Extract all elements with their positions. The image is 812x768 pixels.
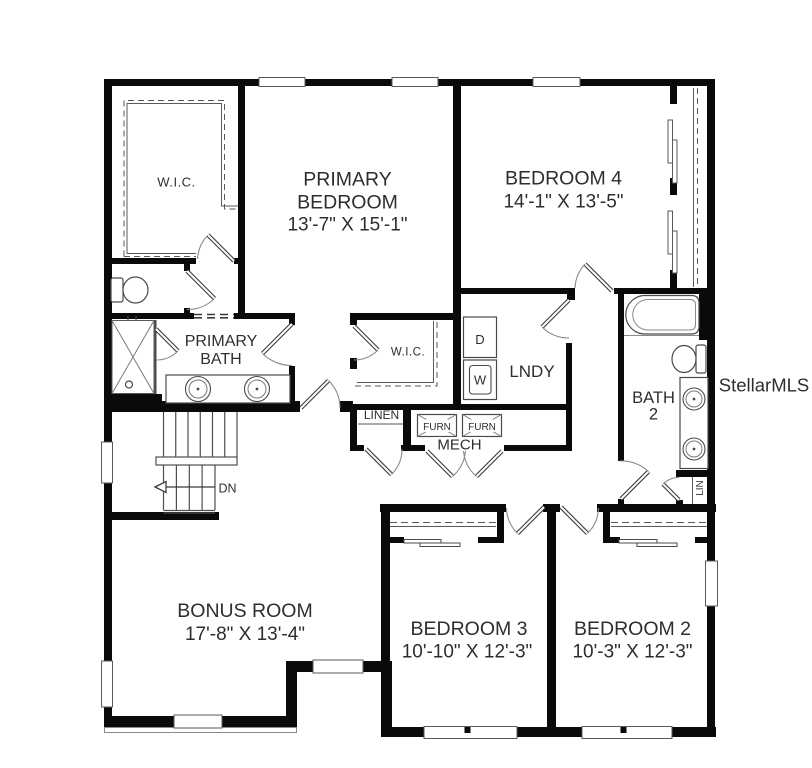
svg-text:LIN: LIN [695, 480, 706, 496]
svg-text:BEDROOM: BEDROOM [297, 192, 398, 214]
svg-text:BATH: BATH [200, 351, 241, 368]
svg-text:14'-1" X 13'-5": 14'-1" X 13'-5" [503, 192, 623, 213]
svg-text:W.I.C.: W.I.C. [391, 347, 425, 359]
svg-text:W.I.C.: W.I.C. [157, 175, 195, 190]
svg-text:D: D [475, 332, 484, 347]
svg-text:2: 2 [649, 406, 658, 424]
svg-text:BATH: BATH [632, 389, 675, 407]
svg-text:W: W [474, 373, 487, 388]
svg-text:PRIMARY: PRIMARY [303, 169, 392, 191]
svg-text:LNDY: LNDY [509, 362, 554, 381]
svg-text:PRIMARY: PRIMARY [185, 333, 258, 350]
svg-text:10'-10" X 12'-3": 10'-10" X 12'-3" [402, 642, 533, 663]
svg-text:FURN: FURN [468, 422, 496, 433]
svg-text:10'-3" X 12'-3": 10'-3" X 12'-3" [572, 642, 692, 663]
svg-text:StellarMLS: StellarMLS [719, 375, 809, 396]
svg-text:17'-8" X 13'-4": 17'-8" X 13'-4" [185, 624, 305, 645]
svg-text:DN: DN [218, 482, 236, 496]
svg-text:BEDROOM 3: BEDROOM 3 [410, 618, 527, 640]
svg-text:13'-7" X 15'-1": 13'-7" X 15'-1" [287, 215, 407, 236]
svg-text:BEDROOM 4: BEDROOM 4 [505, 168, 622, 190]
svg-text:BONUS ROOM: BONUS ROOM [177, 600, 312, 622]
svg-text:BEDROOM 2: BEDROOM 2 [574, 618, 691, 640]
svg-text:LINEN: LINEN [364, 408, 399, 422]
svg-text:MECH: MECH [437, 437, 481, 454]
svg-text:FURN: FURN [423, 422, 451, 433]
